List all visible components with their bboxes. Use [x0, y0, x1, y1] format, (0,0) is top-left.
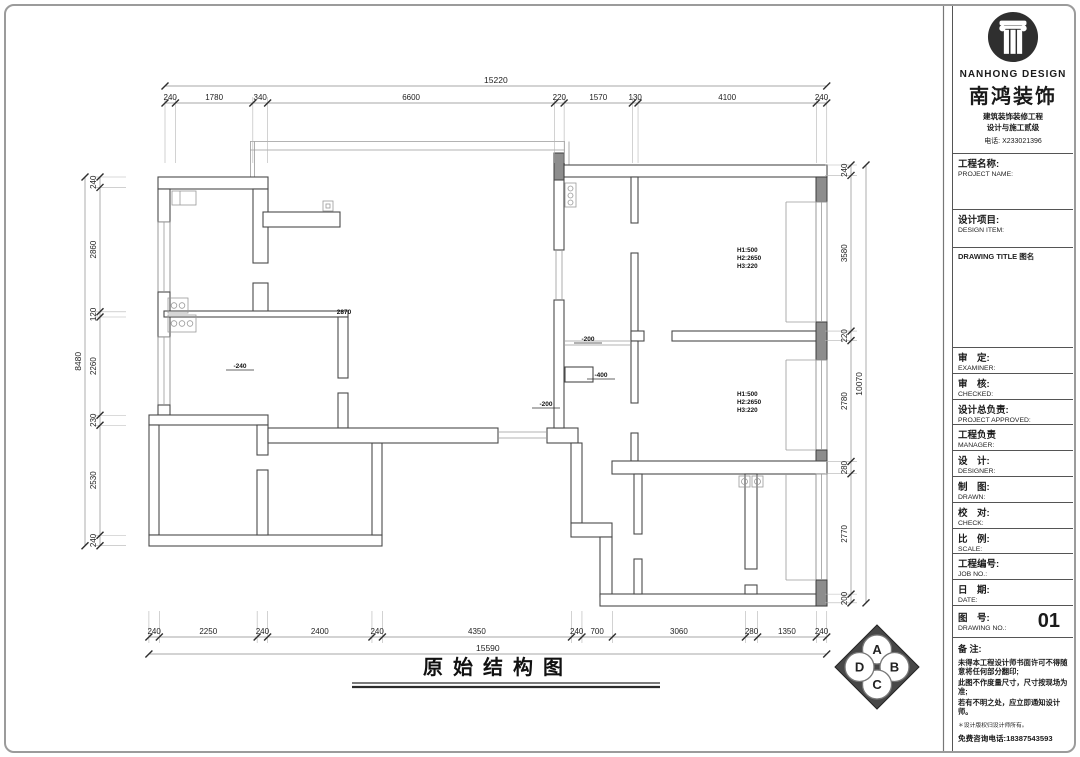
row-label-en: MANAGER:: [958, 442, 1068, 449]
dimension-value: 280: [840, 460, 849, 474]
wall: [631, 177, 638, 223]
row-label-cn: 日 期:: [958, 582, 1068, 596]
column-symbol: [323, 201, 333, 211]
brand-phone: 电话: X233021396: [958, 136, 1068, 146]
wall-pier: [816, 177, 827, 202]
titleblock-sidebar: NANHONG DESIGN 南鸿装饰 建筑装饰装修工程 设计与施工贰级 电话:…: [952, 6, 1073, 751]
dimension-total-value: 15220: [484, 75, 508, 85]
level-label: -200: [539, 401, 552, 408]
wall: [257, 470, 268, 535]
dimension-chain-right: 24035802202780280277020010070: [825, 162, 870, 607]
wall: [158, 405, 170, 415]
dimension-value: 240: [147, 627, 161, 636]
project-name-label-en: PROJECT NAME:: [958, 171, 1068, 178]
compass-letter-d: D: [855, 660, 864, 675]
row-label-en: CHECK:: [958, 520, 1068, 527]
dimension-value: 200: [840, 591, 849, 605]
floor-plan-canvas: 2870 -240 -200 -400 -200 H1:500 H2:2650 …: [0, 0, 1080, 757]
window-spec: H2:2650: [737, 399, 762, 406]
notes-title: 备 注:: [958, 642, 1068, 655]
dimension-value: 6600: [402, 93, 420, 102]
titleblock-row: 校 对:CHECK:: [953, 503, 1073, 529]
design-item-label-cn: 设计项目:: [958, 212, 1068, 226]
brand-subtitle: 建筑装饰装修工程 设计与施工贰级: [958, 111, 1068, 134]
dimension-value: 1780: [205, 93, 223, 102]
wall: [600, 537, 612, 597]
dimension-value: 1350: [778, 627, 796, 636]
balcony-lines: [250, 142, 569, 178]
dimension-value: 4100: [718, 93, 736, 102]
note-line: 此图不作度量尺寸，尺寸按现场为准;: [958, 678, 1068, 697]
window-spec: H1:500: [737, 247, 758, 254]
wall-pier: [554, 153, 564, 180]
compass-letter-b: B: [890, 660, 899, 675]
drawing-number-value: 01: [1038, 610, 1068, 633]
wall: [564, 165, 827, 177]
titleblock-row: 制 图:DRAWN:: [953, 477, 1073, 503]
titleblock-row: 设计总负责:PROJECT APPROVED:: [953, 400, 1073, 426]
dimension-value: 2250: [199, 627, 217, 636]
wall: [672, 331, 827, 341]
titleblock-row: 比 例:SCALE:: [953, 529, 1073, 555]
row-label-en: EXAMINER:: [958, 365, 1068, 372]
row-label-en: PROJECT APPROVED:: [958, 417, 1068, 424]
dimension-value: 280: [745, 627, 759, 636]
row-label-cn: 比 例:: [958, 531, 1068, 545]
wall: [600, 594, 827, 606]
dimension-value: 240: [370, 627, 384, 636]
wall-stub: [565, 367, 593, 382]
dimension-value: 3060: [670, 627, 688, 636]
row-label-en: DRAWN:: [958, 494, 1068, 501]
design-item-label-en: DESIGN ITEM:: [958, 227, 1068, 234]
wall: [634, 559, 642, 594]
brand-subtitle-line2: 设计与施工贰级: [958, 122, 1068, 133]
row-label-cn: 工程编号:: [958, 556, 1068, 570]
floor-plan-walls: [149, 153, 827, 606]
dimension-value: 2860: [89, 240, 98, 258]
wall: [631, 253, 638, 341]
wall: [571, 523, 612, 537]
dimension-value: 2770: [840, 524, 849, 542]
wall: [338, 393, 348, 428]
drawing-title-text: 原始结构图: [423, 655, 573, 679]
company-logo-block: NANHONG DESIGN 南鸿装饰 建筑装饰装修工程 设计与施工贰级 电话:…: [953, 6, 1073, 154]
window-spec: H2:2650: [737, 255, 762, 262]
wall: [554, 300, 564, 428]
wall: [158, 177, 268, 189]
window-spec: H3:220: [737, 263, 758, 270]
row-label-cn: 审 核:: [958, 376, 1068, 390]
drawing-title-label: DRAWING TITLE 图名: [958, 251, 1068, 262]
dimension-total-value: 15590: [476, 643, 500, 653]
dimension-value: 240: [815, 93, 829, 102]
dimension-value: 340: [254, 93, 268, 102]
row-label-cn: 制 图:: [958, 479, 1068, 493]
wall: [338, 317, 348, 378]
drawing-number-label-cn: 图 号:: [958, 610, 1038, 624]
level-label: -400: [594, 372, 607, 379]
titleblock-row: 工程编号:JOB NO.:: [953, 554, 1073, 580]
dimension-value: 220: [553, 93, 567, 102]
wall: [547, 428, 578, 443]
titleblock-rows: 审 定:EXAMINER:审 核:CHECKED:设计总负责:PROJECT A…: [953, 348, 1073, 606]
dimension-value: 240: [840, 163, 849, 177]
dimension-value: 220: [840, 329, 849, 343]
row-label-cn: 设 计:: [958, 453, 1068, 467]
titleblock-row: 审 核:CHECKED:: [953, 374, 1073, 400]
dimension-value: 130: [629, 93, 643, 102]
level-label: -200: [581, 336, 594, 343]
dimension-value: 230: [89, 413, 98, 427]
dimension-value: 3580: [840, 244, 849, 262]
dimension-value: 2780: [840, 392, 849, 410]
wall-pier: [816, 322, 827, 360]
row-label-en: DESIGNER:: [958, 468, 1068, 475]
row-label-cn: 校 对:: [958, 505, 1068, 519]
drawing-number-label-en: DRAWING NO.:: [958, 625, 1038, 632]
brand-name-en: NANHONG DESIGN: [958, 69, 1068, 80]
window-spec: H1:500: [737, 391, 758, 398]
row-label-en: SCALE:: [958, 546, 1068, 553]
dimension-value: 240: [89, 175, 98, 189]
wall: [612, 461, 827, 474]
notes-block: 备 注: 未得本工程设计师书面许可不得随意将任何部分翻印; 此图不作度量尺寸，尺…: [953, 638, 1073, 751]
wall: [554, 180, 564, 250]
wall: [571, 443, 582, 523]
dimension-value: 240: [164, 93, 178, 102]
wall: [631, 433, 638, 461]
copyright-note: ＊设计版权归设计师所有。: [958, 720, 1068, 729]
compass-letter-a: A: [872, 642, 882, 657]
level-label: -240: [233, 363, 246, 370]
wall: [631, 341, 638, 403]
brand-subtitle-line1: 建筑装饰装修工程: [958, 111, 1068, 122]
range-hood-icon: [172, 191, 196, 205]
note-line: 未得本工程设计师书面许可不得随意将任何部分翻印;: [958, 658, 1068, 677]
dimension-chain-left: 2402860120226023025302408480: [73, 174, 126, 550]
wall: [631, 331, 644, 341]
drawing-title-row: DRAWING TITLE 图名: [953, 248, 1073, 348]
note-line: 若有不明之处，应立即通知设计师。: [958, 698, 1068, 717]
dimension-value: 700: [590, 627, 604, 636]
compass-letter-c: C: [872, 677, 882, 692]
wall: [253, 283, 268, 312]
row-label-cn: 设计总负责:: [958, 402, 1068, 416]
wall-pier: [816, 580, 827, 606]
wall: [268, 428, 498, 443]
dimension-value: 4350: [468, 627, 486, 636]
titleblock-row: 工程负责MANAGER:: [953, 425, 1073, 451]
hotline-phone: 免费咨询电话:18387543593: [958, 733, 1068, 744]
row-label-cn: 工程负责: [958, 427, 1068, 441]
column-logo-icon: [987, 11, 1039, 63]
compass: A B C D: [835, 625, 919, 709]
dimension-value: 2400: [311, 627, 329, 636]
row-label-en: DATE:: [958, 597, 1068, 604]
wall: [149, 415, 268, 425]
row-label-en: JOB NO.:: [958, 571, 1068, 578]
wall-stub: [263, 212, 340, 227]
wall: [164, 311, 348, 317]
drawing-title: 原始结构图: [352, 655, 660, 687]
row-label-cn: 审 定:: [958, 350, 1068, 364]
dimension-total-value: 10070: [854, 372, 864, 396]
dimension-value: 240: [89, 533, 98, 547]
wall: [149, 535, 382, 546]
titleblock-row: 审 定:EXAMINER:: [953, 348, 1073, 374]
titleblock-row: 日 期:DATE:: [953, 580, 1073, 606]
wall: [257, 425, 268, 455]
dimension-value: 240: [256, 627, 270, 636]
brand-name-cn: 南鸿装饰: [958, 80, 1068, 109]
wall: [372, 443, 382, 535]
stove-icon: [565, 183, 576, 207]
dimension-value: 240: [815, 627, 829, 636]
level-label: 2870: [337, 309, 352, 316]
drawing-sheet: 2870 -240 -200 -400 -200 H1:500 H2:2650 …: [0, 0, 1080, 757]
project-name-row: 工程名称: PROJECT NAME:: [953, 154, 1073, 210]
dimension-total-value: 8480: [73, 352, 83, 371]
wall: [634, 474, 642, 534]
wall: [745, 585, 757, 594]
dimension-value: 240: [570, 627, 584, 636]
dimension-chain-bottom: 2402250240240024043502407003060280135024…: [145, 611, 830, 658]
titleblock-row: 设 计:DESIGNER:: [953, 451, 1073, 477]
design-item-row: 设计项目: DESIGN ITEM:: [953, 210, 1073, 248]
row-label-en: CHECKED:: [958, 391, 1068, 398]
drawing-number-row: 图 号: DRAWING NO.: 01: [953, 606, 1073, 638]
dimension-value: 2530: [89, 471, 98, 489]
wall: [158, 189, 170, 222]
dimension-value: 2260: [89, 357, 98, 375]
window-spec: H3:220: [737, 407, 758, 414]
wall: [149, 425, 159, 535]
dimension-value: 1570: [589, 93, 607, 102]
dimension-value: 120: [89, 307, 98, 321]
project-name-label-cn: 工程名称:: [958, 156, 1068, 170]
wall: [745, 474, 757, 569]
